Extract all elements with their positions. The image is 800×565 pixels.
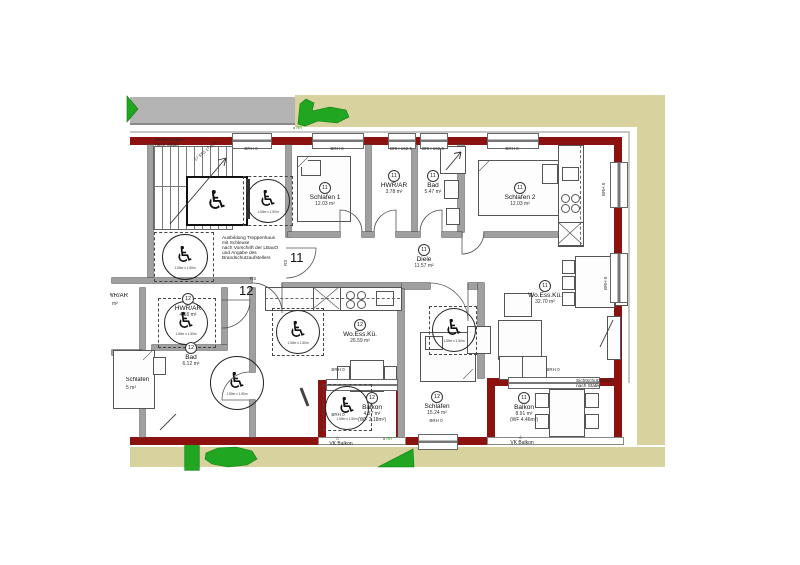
room-area: 15.24 m² (402, 410, 472, 416)
room-name: Balkon (489, 404, 559, 411)
cooktop-burner (346, 300, 355, 309)
wheelchair-turning-circle: ♿ 1.50m x 1.50m (432, 308, 476, 352)
wheelchair-icon: ♿ (288, 320, 308, 342)
exterior-wall-bottomC (456, 437, 487, 445)
note-line: Brandschutzaufstellers (222, 256, 300, 261)
bed-fold (143, 351, 152, 360)
room-name: Schlafen (402, 403, 472, 410)
wheelchair-dim-label: 1.50m x 1.50m (257, 210, 278, 214)
rr-marker-label: RR (296, 125, 302, 130)
unit-circle: 11 (319, 182, 331, 194)
room-label-schlafen2-11: 11 Schlafen 2 12.03 m² (485, 176, 555, 207)
partial-room-name: Schlafen (122, 377, 149, 383)
bed-fold (463, 369, 473, 379)
window (418, 434, 458, 450)
building-outline-right (628, 131, 630, 383)
room-name: Wo.Ess.Kü. (510, 292, 580, 299)
unit-circle: 11 (427, 170, 439, 182)
interior-wall (402, 283, 430, 289)
site-lawn-top (295, 95, 665, 127)
cooktop-burner (357, 300, 366, 309)
sofa-cushion-line (522, 356, 523, 378)
wheelchair-turning-circle: ♿ 1.50m x 1.50m (276, 310, 320, 354)
coffee-table (498, 320, 542, 360)
room-area: 32.70 m² (510, 299, 580, 305)
unit-circle: 11 (418, 244, 430, 256)
bed-fold (298, 157, 308, 167)
tv-board (607, 316, 621, 360)
site-roof-gray-band (130, 97, 295, 125)
room-label-balkon-11: 11 Balkon 8.91 m² (WF 4.46m²) (489, 386, 559, 423)
hedge-rect (185, 445, 199, 470)
room-name: Schlafen 1 (290, 194, 360, 201)
unit-circle: 11 (388, 170, 400, 182)
room-name: Bad (160, 354, 222, 361)
wheelchair-turning-circle: ♿ 1.50m x 1.50m (246, 179, 290, 223)
unit-circle: 11 (518, 392, 530, 404)
room-area: 4.16 m² (154, 312, 222, 318)
room-label-bad-12: 12 Bad 6.12 m² (160, 336, 222, 367)
brh-label: BRH 162.5 (418, 146, 448, 151)
cooktop-burner (571, 194, 580, 203)
room-label-bad-11: 11 Bad 5.47 m² (402, 164, 464, 195)
exterior-wall-bottomA (130, 437, 318, 445)
floor-plan-canvas: ♿ ♿ 1.50m x 1.50m ♿ 1.50m x 1.50m ♿ 1.50… (0, 0, 800, 565)
note-line: nach Statik (576, 384, 632, 389)
unit-circle: 12 (182, 293, 194, 305)
interior-wall (396, 232, 420, 237)
brh-label: BRH 0 (323, 412, 353, 417)
room-name: Balkon (337, 404, 407, 411)
kitchen-sink (562, 167, 579, 181)
unit-circle: 12 (366, 392, 378, 404)
room-label-woesskü-11: 11 Wo.Ess.Kü. 32.70 m² (510, 274, 580, 305)
wheelchair-icon: ♿ (258, 189, 278, 211)
wheelchair-dim-label: 1.50m x 1.50m (175, 332, 196, 336)
room-area-extra: (WF 2.18m²) (337, 417, 407, 423)
interior-wall (442, 232, 462, 237)
room-label-schlafen1-11: 11 Schlafen 1 12.03 m² (290, 176, 360, 207)
wheelchair-dim-label: 1.50m x 1.50m (443, 339, 464, 343)
washbasin (446, 208, 460, 225)
unit-circle: 12 (354, 319, 366, 331)
room-label-diele-11: 11 Diele 11.57 m² (390, 238, 458, 269)
site-lawn-bottom (130, 447, 665, 467)
chair (585, 414, 599, 429)
wheelchair-icon: ♿ (175, 245, 195, 267)
sichtschutzwand-note: Sichtschutzwand nach Statik (576, 379, 632, 389)
elevator: ♿ (186, 176, 248, 226)
interior-wall (362, 232, 374, 237)
wheelchair-icon: ♿ (444, 318, 464, 340)
unit-circle: 11 (539, 280, 551, 292)
vk-balkon-label: VK Balkon (492, 440, 552, 446)
level-marker-icon: △ (519, 434, 522, 439)
partial-room-area: 5 m² (126, 385, 136, 391)
chair (562, 260, 575, 274)
room-area: 11.57 m² (390, 263, 458, 269)
brh-label: BRH 0 (538, 367, 568, 372)
rr-marker-label: RR (386, 436, 392, 441)
vk-balkon-label: VK Balkon (311, 441, 371, 447)
room-area: 12.03 m² (485, 201, 555, 207)
kitchen-dash-line (265, 298, 400, 299)
cooktop-burner (561, 204, 570, 213)
room-name: Wo.Ess.Kü. (325, 331, 395, 338)
room-label-schlafen-12: 12 Schlafen 15.24 m² (402, 385, 472, 416)
apartment-number-12: 12 (239, 283, 253, 298)
wheelchair-dim-label: 1.50m x 1.50m (174, 266, 195, 270)
unit-circle: 11 (514, 182, 526, 194)
bed-fold (479, 161, 489, 171)
room-name: Schlafen 2 (485, 194, 555, 201)
level-marker-icon: △ (336, 435, 339, 440)
exterior-wall-bottomB (404, 437, 418, 445)
elevator-wheelchair-icon: ♿ (205, 188, 228, 214)
unit-circle: 12 (185, 342, 197, 354)
room-area: 5.47 m² (402, 189, 464, 195)
brh-label: BRH 0 (236, 146, 266, 151)
room-area-extra: (WF 4.46m²) (489, 417, 559, 423)
brh-label: BRH 0 (603, 277, 608, 290)
room-area: 12.03 m² (290, 201, 360, 207)
rs-label-12: RS (250, 276, 256, 281)
chair (585, 393, 599, 408)
window (610, 253, 628, 303)
rr-marker: o RR (293, 125, 302, 130)
site-lawn-right (637, 127, 665, 445)
rr-marker: o RR (383, 436, 392, 441)
interior-wall (222, 288, 227, 345)
wheelchair-dim-label: 1.50m x 1.50m (226, 392, 247, 396)
room-label-balkon-12: 12 Balkon 4.37 m² (WF 2.18m²) (337, 386, 407, 423)
room-label-woesskü-12: 12 Wo.Ess.Kü. 26.59 m² (325, 313, 395, 344)
partial-room-name: HWR/AR (110, 293, 128, 299)
room-name: Bad (402, 182, 464, 189)
brh-label: BRH 0 (322, 146, 352, 151)
wheelchair-icon: ♿ (227, 371, 247, 393)
schleuse-note: Ausbildung Treppenhaus mit Schleuse nach… (222, 236, 300, 261)
kitchen-dash-line (580, 145, 581, 245)
cooktop-burner (561, 194, 570, 203)
brh-label: BRH 0 (497, 146, 527, 151)
wheelchair-dim-label: 1.50m x 1.50m (287, 341, 308, 345)
unit-circle: 12 (431, 391, 443, 403)
building-outline-top (130, 131, 629, 133)
wheelchair-turning-circle: ♿ 1.50m x 1.50m (162, 234, 208, 280)
room-name: Diele (390, 256, 458, 263)
room-label-hwr-12: 12 HWR/AR 4.16 m² (154, 287, 222, 318)
partial-room-area: m² (112, 301, 118, 307)
brh-label: BRH 0 (421, 418, 451, 423)
room-name: HWR/AR (154, 305, 222, 312)
cooktop-burner (571, 204, 580, 213)
brh-label: BRH 0 (601, 183, 606, 196)
room-area: 26.59 m² (325, 338, 395, 344)
brh-label: BRH 0 (323, 367, 353, 372)
dining-table (575, 256, 615, 308)
brh-label: BRH 162.5 (386, 146, 416, 151)
window (610, 162, 628, 208)
room-area: 6.12 m² (160, 361, 222, 367)
